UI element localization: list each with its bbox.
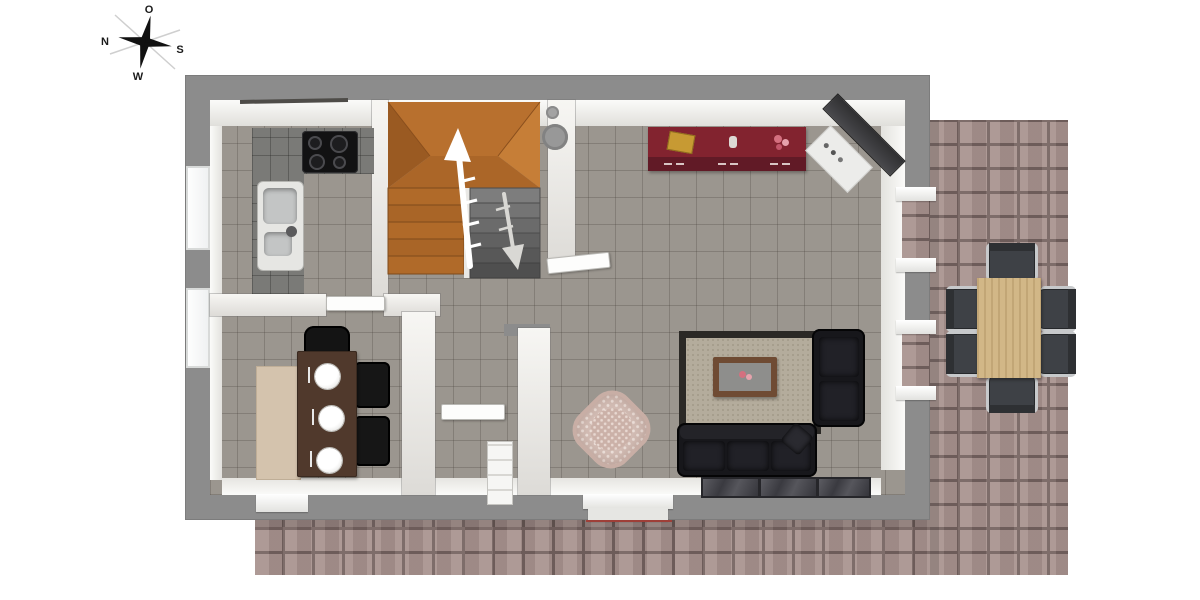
armchair — [812, 329, 865, 427]
chimney-flue-large — [542, 124, 568, 150]
wall-dining-hall — [402, 312, 435, 495]
floor-mat — [701, 477, 760, 498]
coffee-table-top — [719, 363, 771, 391]
outdoor-chair-bottom — [986, 377, 1038, 413]
sink-basin-main — [263, 188, 297, 224]
staircase — [386, 98, 546, 284]
flowers — [774, 135, 782, 143]
faucet — [286, 226, 297, 237]
cooktop — [302, 131, 358, 173]
patio-door-opening — [902, 334, 930, 390]
stair-flight-wood — [388, 188, 464, 274]
drawer-handle — [770, 163, 778, 165]
window-sill-south — [256, 494, 308, 512]
dining-table — [297, 351, 357, 477]
wicker-chair-seat — [582, 400, 641, 459]
drawer-handle — [730, 163, 738, 165]
plate — [315, 364, 340, 389]
chimney-flue-small — [546, 106, 559, 119]
chair-back — [989, 243, 1035, 251]
door-jamb — [896, 258, 936, 272]
brick-patio-bottom — [255, 520, 930, 575]
book — [667, 131, 696, 154]
plate — [319, 406, 344, 431]
wall-face-east — [881, 126, 905, 470]
flowers — [782, 139, 789, 146]
drawer-handle — [664, 163, 672, 165]
vase — [729, 136, 737, 148]
chair-back — [946, 289, 954, 329]
drawer-handle — [676, 163, 684, 165]
chair-back — [1068, 289, 1076, 329]
outdoor-chair-right — [1040, 331, 1076, 377]
chair-back — [1068, 334, 1076, 374]
sofa — [677, 423, 817, 477]
dining-chair-right — [354, 362, 390, 408]
door-jamb — [896, 320, 936, 334]
burner — [330, 135, 348, 153]
cutlery — [312, 409, 314, 425]
compass-label-north: N — [101, 36, 109, 48]
wall-kitchen-dining — [210, 294, 326, 316]
chair-back — [946, 334, 954, 374]
table-flowers — [739, 371, 746, 378]
compass-arm-north — [118, 37, 145, 47]
cabinet-item — [830, 149, 837, 156]
dining-chair-right — [354, 416, 390, 466]
outdoor-dining-table — [977, 278, 1041, 378]
cabinet-item — [823, 142, 830, 149]
floor-mat — [817, 477, 871, 498]
drawer-handle — [718, 163, 726, 165]
window-dining — [186, 288, 210, 368]
plate — [317, 448, 342, 473]
burner — [333, 156, 346, 169]
tan-sideboard — [256, 366, 301, 480]
door-kitchen — [326, 296, 385, 311]
table-flowers — [746, 374, 752, 380]
chair-back — [989, 405, 1035, 413]
cutlery — [308, 367, 310, 383]
sofa-cushion — [727, 441, 769, 471]
kitchen-sink — [257, 181, 304, 271]
threshold-line — [586, 520, 672, 522]
burner — [309, 154, 325, 170]
radiator — [487, 441, 513, 505]
burner — [308, 136, 322, 150]
red-sideboard — [648, 127, 806, 171]
window-kitchen — [186, 166, 210, 250]
door-jamb — [896, 187, 936, 201]
sofa-cushion — [683, 441, 725, 471]
cutlery — [310, 451, 312, 467]
floor-mat — [759, 477, 818, 498]
patio-door-opening — [902, 200, 930, 262]
outdoor-chair-top — [986, 243, 1038, 281]
floor-plan-scene: O N S W — [0, 0, 1200, 600]
door-hall — [441, 404, 505, 420]
outdoor-chair-right — [1040, 286, 1076, 332]
wall-hall-living — [518, 328, 550, 495]
armchair-cushion — [819, 337, 859, 377]
compass-label-south: S — [176, 44, 183, 56]
patio-step-upper — [583, 494, 673, 509]
flowers — [776, 144, 782, 150]
drawer-handle — [782, 163, 790, 165]
door-jamb — [896, 386, 936, 400]
dining-chair-head — [304, 326, 350, 354]
compass-label-west: W — [133, 71, 144, 83]
armchair-cushion — [819, 381, 859, 421]
cabinet-item — [837, 156, 844, 163]
compass-label-east: O — [145, 4, 154, 16]
coffee-table — [713, 357, 777, 397]
